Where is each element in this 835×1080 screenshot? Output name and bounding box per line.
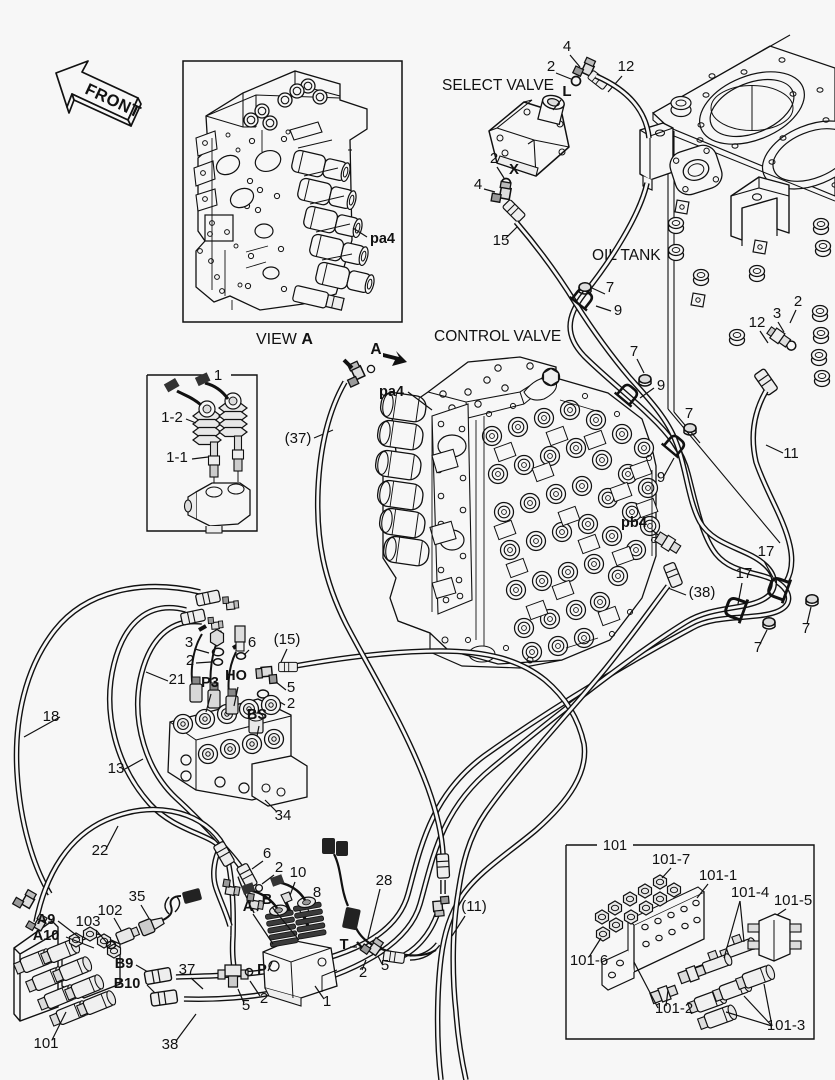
svg-text:101-7: 101-7 — [652, 851, 690, 868]
svg-text:(38): (38) — [689, 584, 716, 601]
svg-text:7: 7 — [630, 343, 638, 360]
svg-text:pa4: pa4 — [370, 231, 395, 247]
svg-text:1: 1 — [214, 367, 222, 384]
svg-text:CONTROL VALVE: CONTROL VALVE — [434, 328, 561, 345]
svg-text:6: 6 — [248, 634, 256, 651]
svg-text:3: 3 — [773, 305, 781, 322]
svg-text:1-2: 1-2 — [161, 409, 183, 426]
svg-text:1: 1 — [323, 993, 331, 1010]
svg-text:5: 5 — [287, 679, 295, 696]
svg-text:X: X — [509, 161, 519, 178]
svg-text:28: 28 — [376, 872, 393, 889]
svg-text:P: P — [257, 962, 267, 978]
svg-text:11: 11 — [783, 445, 799, 462]
svg-text:(11): (11) — [461, 898, 487, 915]
svg-text:VIEW A: VIEW A — [256, 331, 313, 348]
svg-text:37: 37 — [179, 961, 196, 978]
svg-text:101-5: 101-5 — [774, 892, 812, 909]
svg-text:A10: A10 — [33, 928, 60, 944]
svg-text:1-1: 1-1 — [166, 449, 188, 466]
svg-text:2: 2 — [186, 652, 194, 669]
svg-text:21: 21 — [169, 671, 186, 688]
svg-text:9: 9 — [657, 377, 665, 394]
svg-text:BS: BS — [247, 707, 267, 723]
svg-text:12: 12 — [618, 58, 635, 75]
svg-text:101-2: 101-2 — [655, 1000, 693, 1017]
svg-text:101: 101 — [33, 1035, 58, 1052]
svg-text:B10: B10 — [114, 976, 141, 992]
svg-text:101-3: 101-3 — [767, 1017, 805, 1034]
svg-text:7: 7 — [802, 620, 810, 637]
svg-text:15: 15 — [493, 232, 510, 249]
svg-text:38: 38 — [162, 1036, 179, 1053]
svg-text:A: A — [243, 899, 254, 915]
svg-text:13: 13 — [108, 760, 125, 777]
svg-text:7: 7 — [606, 279, 614, 296]
svg-text:35: 35 — [129, 888, 146, 905]
svg-text:5: 5 — [381, 957, 389, 974]
svg-text:P3: P3 — [201, 675, 219, 691]
svg-text:3: 3 — [185, 634, 193, 651]
svg-text:34: 34 — [275, 807, 292, 824]
svg-text:2: 2 — [547, 58, 555, 75]
svg-text:17: 17 — [736, 565, 753, 582]
svg-text:22: 22 — [92, 842, 109, 859]
svg-text:SELECT VALVE: SELECT VALVE — [442, 77, 554, 94]
svg-text:4: 4 — [563, 38, 571, 55]
svg-text:T: T — [340, 937, 349, 953]
svg-text:6: 6 — [263, 845, 271, 862]
svg-text:(15): (15) — [274, 631, 301, 648]
svg-text:2: 2 — [490, 150, 498, 167]
svg-text:B: B — [262, 892, 272, 908]
svg-text:9: 9 — [614, 302, 622, 319]
svg-text:pb4: pb4 — [621, 515, 647, 531]
svg-text:101-6: 101-6 — [570, 952, 608, 969]
svg-text:A9: A9 — [37, 912, 56, 928]
svg-text:(37): (37) — [285, 430, 312, 447]
svg-text:HO: HO — [225, 668, 247, 684]
svg-text:4: 4 — [474, 176, 482, 193]
svg-text:12: 12 — [749, 314, 766, 331]
svg-text:9: 9 — [657, 469, 665, 486]
svg-text:B9: B9 — [115, 956, 134, 972]
svg-text:102: 102 — [97, 902, 122, 919]
svg-text:17: 17 — [758, 543, 775, 560]
svg-text:OIL TANK: OIL TANK — [592, 247, 661, 264]
svg-text:A: A — [370, 341, 381, 358]
svg-text:2: 2 — [794, 293, 802, 310]
svg-text:2: 2 — [287, 695, 295, 712]
svg-text:101-4: 101-4 — [731, 884, 769, 901]
svg-text:101: 101 — [603, 838, 627, 854]
svg-text:10: 10 — [290, 864, 307, 881]
svg-text:2: 2 — [275, 859, 283, 876]
svg-text:101-1: 101-1 — [699, 867, 737, 884]
svg-text:L: L — [562, 83, 571, 100]
svg-text:pa4: pa4 — [379, 384, 404, 400]
svg-text:7: 7 — [685, 405, 693, 422]
